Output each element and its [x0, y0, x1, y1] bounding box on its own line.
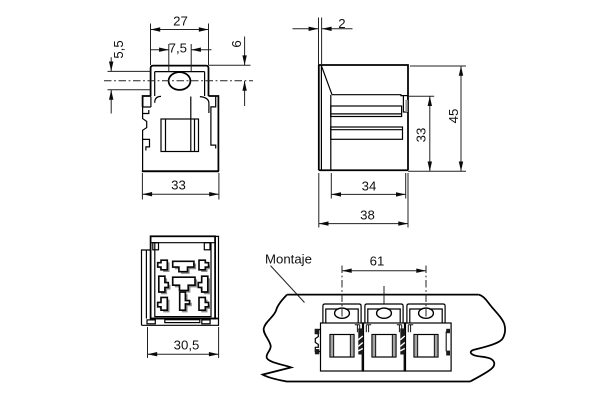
- svg-text:6: 6: [229, 40, 244, 47]
- svg-text:5,5: 5,5: [111, 40, 126, 58]
- svg-text:34: 34: [362, 178, 377, 193]
- svg-text:33: 33: [171, 178, 186, 193]
- svg-text:38: 38: [360, 208, 375, 223]
- svg-text:27: 27: [173, 14, 188, 29]
- svg-text:7,5: 7,5: [169, 40, 187, 55]
- svg-text:33: 33: [414, 128, 429, 143]
- svg-text:2: 2: [338, 16, 345, 31]
- svg-text:61: 61: [370, 254, 385, 269]
- svg-text:Montaje: Montaje: [265, 252, 312, 267]
- svg-text:30,5: 30,5: [174, 338, 200, 353]
- svg-text:45: 45: [446, 109, 461, 124]
